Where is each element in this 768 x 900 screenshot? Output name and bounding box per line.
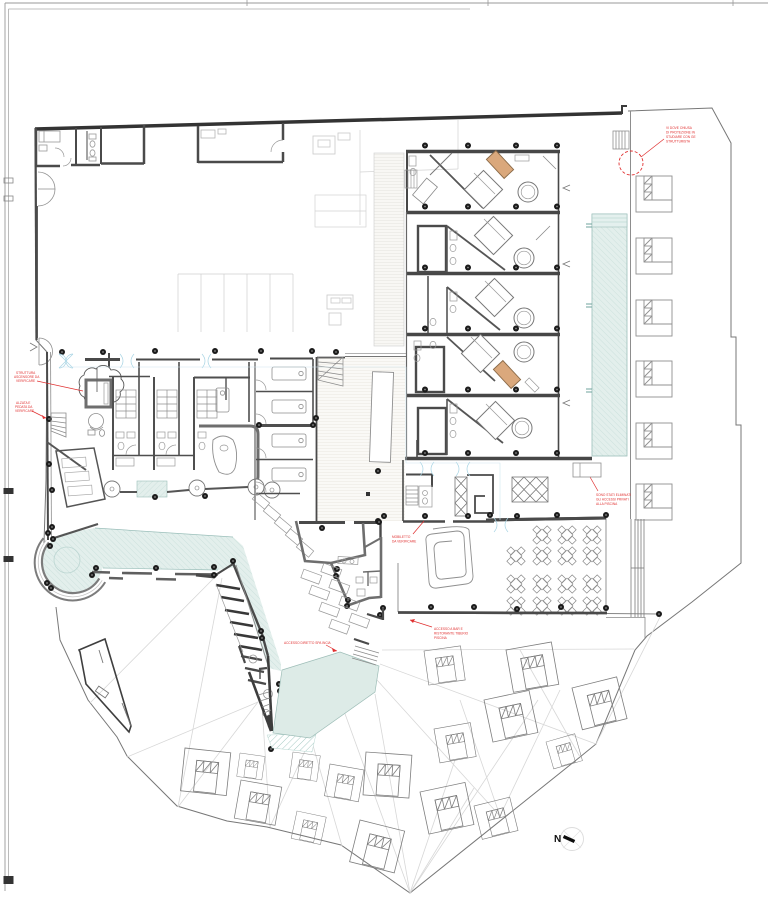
svg-text:ALLA PISCINA: ALLA PISCINA (596, 502, 618, 506)
svg-text:STUDIARE CON GE: STUDIARE CON GE (666, 135, 696, 139)
svg-text:N: N (554, 834, 561, 845)
svg-text:MOBILETTO: MOBILETTO (392, 535, 411, 539)
svg-text:DA VERIFICARE: DA VERIFICARE (392, 540, 416, 544)
svg-text:VI DOVE CHIUSA: VI DOVE CHIUSA (666, 126, 693, 130)
svg-text:ACCESSO DIRETTO SPA INCIA: ACCESSO DIRETTO SPA INCIA (284, 641, 332, 645)
svg-text:ACCESSO A BAR E: ACCESSO A BAR E (434, 627, 463, 631)
svg-text:RISTORANTE TIBERIO: RISTORANTE TIBERIO (434, 632, 469, 636)
svg-text:GLI ACCESSI PRIVATI: GLI ACCESSI PRIVATI (596, 498, 629, 502)
svg-text:STRUTTURISTA: STRUTTURISTA (666, 140, 691, 144)
svg-text:VERIFICARE: VERIFICARE (15, 409, 34, 413)
svg-text:VERIFICARE: VERIFICARE (16, 379, 35, 383)
svg-text:DI PROTEZIONE IN: DI PROTEZIONE IN (666, 131, 696, 135)
svg-text:PISCINA: PISCINA (434, 636, 448, 640)
svg-text:SONO STATI ELIMINATI: SONO STATI ELIMINATI (596, 493, 631, 497)
